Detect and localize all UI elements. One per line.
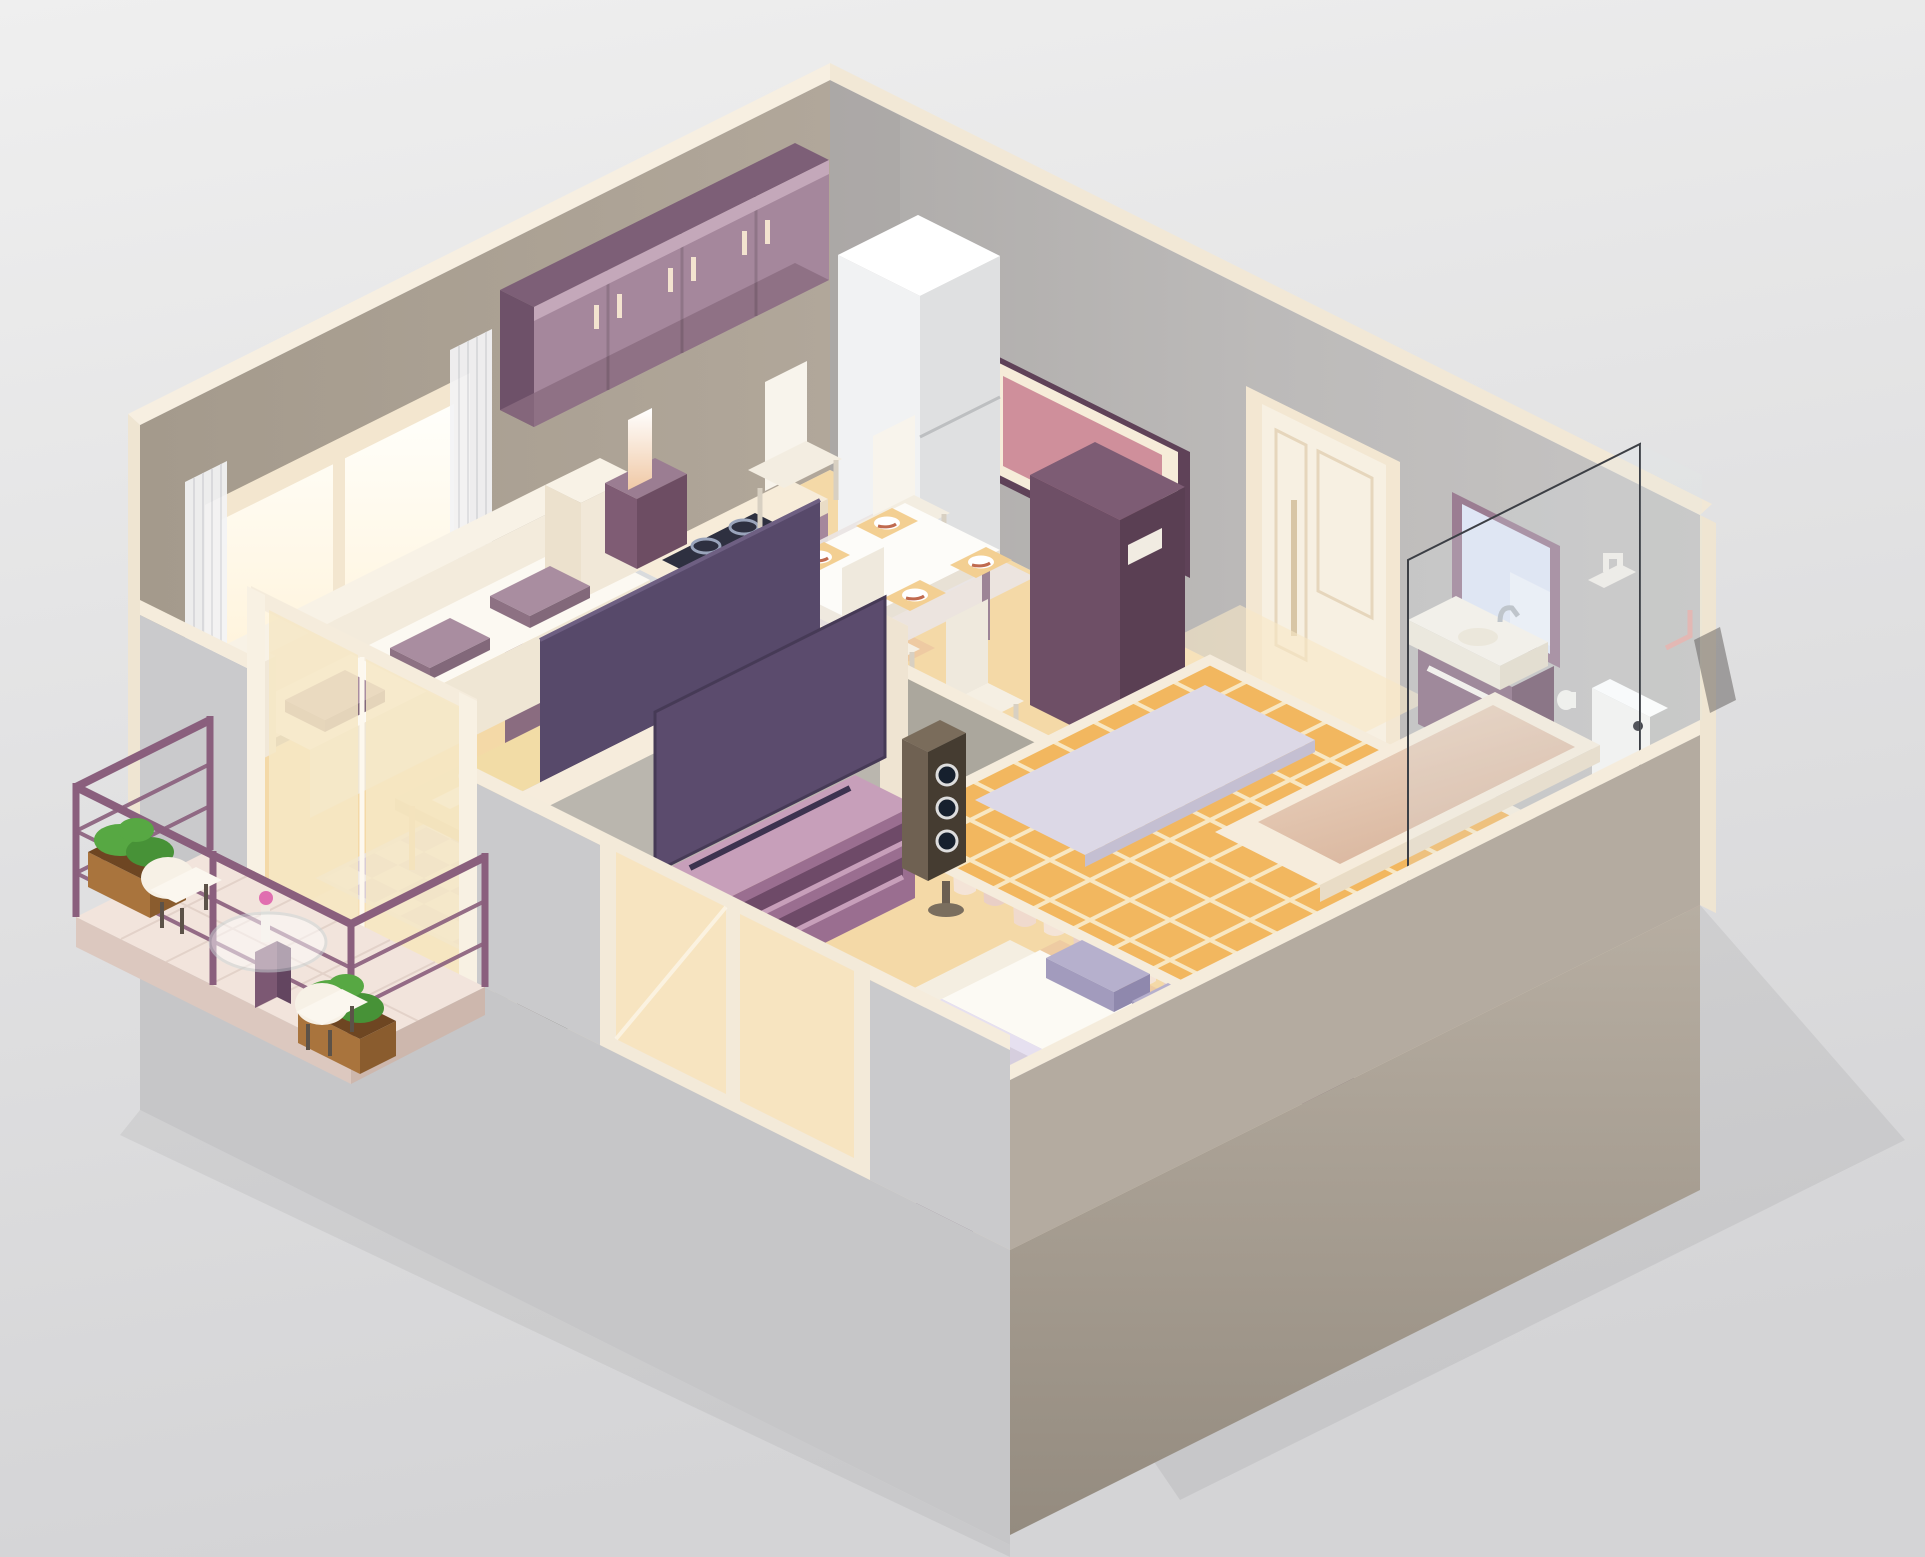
speaker-side [902, 739, 928, 881]
lamp-right [628, 408, 652, 490]
door-post-right [459, 692, 477, 987]
front-right-end [1700, 720, 1716, 913]
speaker-cones [937, 765, 957, 851]
sliding-glass-1 [269, 610, 358, 925]
apartment-isometric-illustration [0, 0, 1925, 1557]
door-post-left [247, 586, 265, 881]
glass-table-top [210, 913, 326, 971]
apartment-illustration-stage [0, 0, 1925, 1557]
flower [259, 891, 273, 905]
sliding-glass-2 [366, 659, 459, 976]
